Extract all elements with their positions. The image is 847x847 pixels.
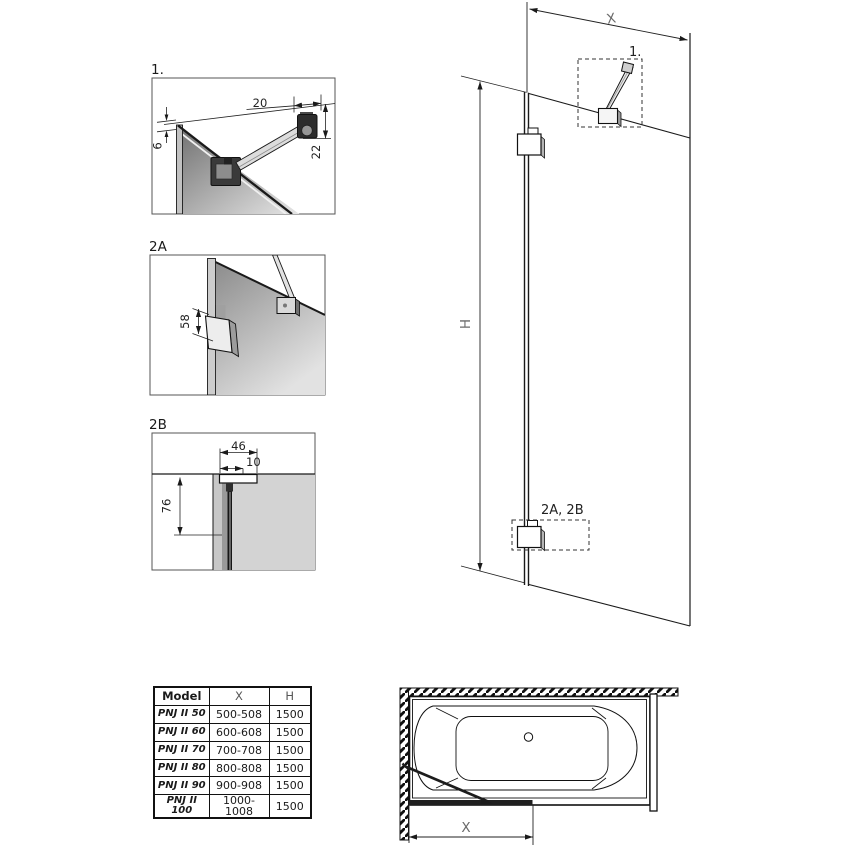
width-label: X xyxy=(605,10,617,27)
profile-body xyxy=(213,474,222,570)
support-arm xyxy=(599,62,634,127)
x-cell: 500-508 xyxy=(209,705,269,723)
x-cell: 1000-1008 xyxy=(209,795,269,819)
h-cell: 1500 xyxy=(269,777,311,795)
screen-glass-plan xyxy=(409,800,533,805)
technical-drawing-page: 1. xyxy=(0,0,847,847)
wall-section xyxy=(232,474,315,570)
x-cell: 600-608 xyxy=(209,723,269,741)
detail-2a-label: 2A xyxy=(149,239,168,255)
table-row: PNJ II 90 900-908 1500 xyxy=(154,777,311,795)
model-cell: PNJ II 50 xyxy=(154,705,209,723)
table-row: PNJ II 80 800-808 1500 xyxy=(154,759,311,777)
model-cell: PNJ II 60 xyxy=(154,723,209,741)
bathtub-basin xyxy=(414,706,637,790)
model-cell: PNJ II 70 xyxy=(154,741,209,759)
dim-76-label: 76 xyxy=(160,499,174,514)
extension-line xyxy=(461,76,529,93)
glass-clamp xyxy=(277,298,300,317)
upper-bracket xyxy=(518,128,545,158)
plan-view: X xyxy=(400,688,678,845)
top-wall xyxy=(409,688,679,696)
elevation-view: X H 1. xyxy=(458,2,690,626)
detail-2b-view: 2B 46 10 xyxy=(149,417,315,570)
x-cell: 900-908 xyxy=(209,777,269,795)
dim-20-label: 20 xyxy=(253,96,268,110)
glass-clamp xyxy=(211,158,241,186)
glass-bottom-edge xyxy=(527,584,690,626)
h-cell: 1500 xyxy=(269,759,311,777)
glass-edge xyxy=(177,125,183,214)
detail-2a-view: 2A xyxy=(149,239,325,395)
details-2-callout-label: 2A, 2B xyxy=(541,503,584,518)
drawing-svg: 1. xyxy=(0,0,847,847)
table-row: PNJ II 50 500-508 1500 xyxy=(154,705,311,723)
table-row: PNJ II 70 700-708 1500 xyxy=(154,741,311,759)
table-header-row: Model X H xyxy=(154,687,311,705)
model-cell: PNJ II 90 xyxy=(154,777,209,795)
detail-2b-label: 2B xyxy=(149,417,167,433)
height-label: H xyxy=(458,319,474,329)
header-model: Model xyxy=(154,687,209,705)
dim-6-label: 6 xyxy=(151,142,165,149)
table-row: PNJ II 60 600-608 1500 xyxy=(154,723,311,741)
h-cell: 1500 xyxy=(269,723,311,741)
model-cell: PNJ II 80 xyxy=(154,759,209,777)
wall-mount-block xyxy=(298,112,318,138)
x-cell: 800-808 xyxy=(209,759,269,777)
profile-step xyxy=(226,483,233,492)
drain-icon xyxy=(524,733,532,741)
dim-10-label: 10 xyxy=(246,455,261,469)
x-cell: 700-708 xyxy=(209,741,269,759)
right-wall-bar xyxy=(650,694,657,811)
detail-1-view: 1. xyxy=(151,62,336,215)
table-row: PNJ II 100 1000-1008 1500 xyxy=(154,795,311,819)
detail-1-callout-label: 1. xyxy=(629,45,641,60)
plan-width-dimension: X xyxy=(409,805,533,845)
spec-table: Model X H PNJ II 50 500-508 1500 PNJ II … xyxy=(153,686,312,819)
extension-line xyxy=(461,566,529,584)
dim-46-label: 46 xyxy=(231,439,246,453)
model-cell: PNJ II 100 xyxy=(154,795,209,819)
h-cell: 1500 xyxy=(269,741,311,759)
detail-1-label: 1. xyxy=(151,62,164,78)
profile-flange xyxy=(220,475,258,484)
header-x: X xyxy=(209,687,269,705)
header-h: H xyxy=(269,687,311,705)
wall-profile xyxy=(525,92,529,586)
plan-width-label: X xyxy=(461,820,470,836)
lower-bracket xyxy=(518,521,545,551)
h-cell: 1500 xyxy=(269,705,311,723)
dim-58-label: 58 xyxy=(178,314,192,329)
h-cell: 1500 xyxy=(269,795,311,819)
dim-22-label: 22 xyxy=(309,145,323,160)
